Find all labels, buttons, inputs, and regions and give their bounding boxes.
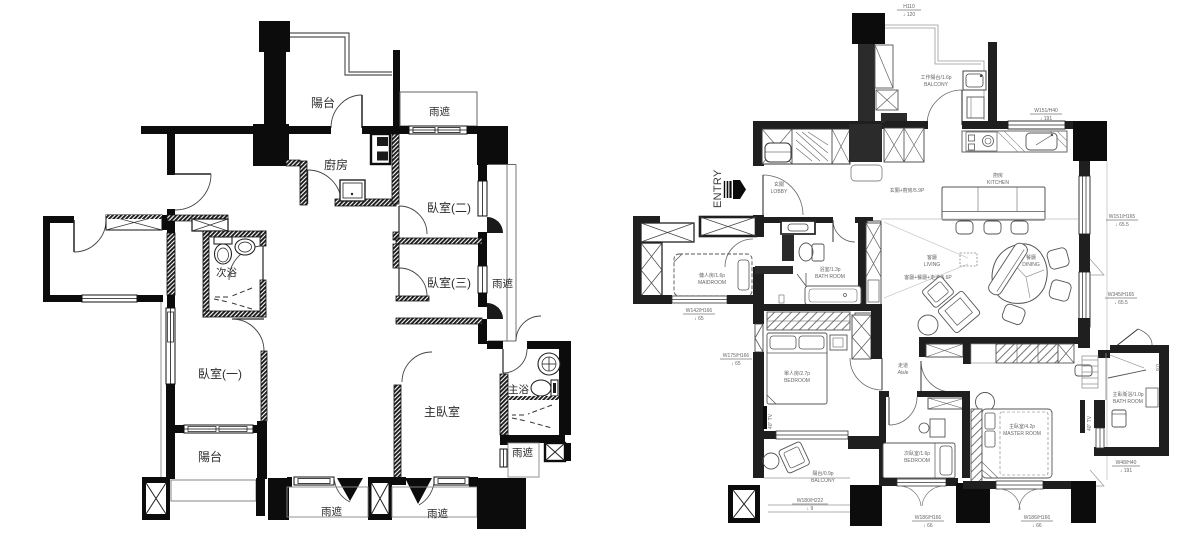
svg-text:BEDROOM: BEDROOM bbox=[904, 458, 930, 464]
svg-text:BATH ROOM: BATH ROOM bbox=[815, 274, 845, 280]
svg-text:陽台: 陽台 bbox=[198, 449, 222, 464]
svg-text:↓ 191: ↓ 191 bbox=[1040, 116, 1052, 122]
svg-text:↓ 9: ↓ 9 bbox=[807, 506, 814, 512]
svg-text:↓ 66: ↓ 66 bbox=[1032, 523, 1042, 529]
svg-text:主臥室/4.2p: 主臥室/4.2p bbox=[1009, 423, 1035, 430]
svg-text:W151/H40: W151/H40 bbox=[1034, 108, 1058, 114]
svg-text:次浴: 次浴 bbox=[216, 266, 237, 279]
svg-text:W175/H166: W175/H166 bbox=[723, 353, 750, 359]
svg-text:陽台: 陽台 bbox=[311, 95, 335, 110]
svg-text:雨遮: 雨遮 bbox=[321, 505, 342, 518]
svg-text:W151/H165: W151/H165 bbox=[1109, 214, 1136, 220]
svg-text:↓ 65: ↓ 65 bbox=[694, 316, 704, 322]
svg-text:40" TV: 40" TV bbox=[1087, 415, 1093, 431]
svg-text:↓ 120: ↓ 120 bbox=[903, 12, 915, 18]
svg-text:BALCONY: BALCONY bbox=[924, 82, 949, 88]
svg-text:MAIDROOM: MAIDROOM bbox=[698, 280, 726, 286]
svg-text:BEDROOM: BEDROOM bbox=[784, 378, 810, 384]
svg-text:LIVING: LIVING bbox=[924, 262, 941, 268]
svg-text:LOBBY: LOBBY bbox=[771, 189, 788, 195]
svg-text:MASTER ROOM: MASTER ROOM bbox=[1003, 431, 1041, 437]
svg-text:玄關: 玄關 bbox=[774, 181, 784, 188]
svg-text:浴室/1.3p: 浴室/1.3p bbox=[819, 266, 840, 273]
svg-text:0.8: 0.8 bbox=[1154, 364, 1160, 371]
svg-text:↓ 66: ↓ 66 bbox=[923, 523, 933, 529]
svg-text:ENTRY: ENTRY bbox=[712, 169, 724, 208]
svg-text:H110: H110 bbox=[903, 4, 915, 10]
svg-text:W142/H166: W142/H166 bbox=[686, 308, 713, 314]
svg-text:↓ 65.5: ↓ 65.5 bbox=[1114, 300, 1128, 306]
svg-text:廚房: 廚房 bbox=[993, 172, 1003, 179]
svg-text:臥室(一): 臥室(一) bbox=[198, 366, 242, 381]
svg-text:次臥室/1.6p: 次臥室/1.6p bbox=[904, 450, 930, 457]
svg-text:臥室(二): 臥室(二) bbox=[427, 200, 471, 215]
svg-text:BALCONY: BALCONY bbox=[811, 478, 836, 484]
svg-text:玄關+廚房/5.9P: 玄關+廚房/5.9P bbox=[890, 187, 925, 194]
svg-text:BATH ROOM: BATH ROOM bbox=[1113, 399, 1143, 405]
svg-text:工作陽台/1.6p: 工作陽台/1.6p bbox=[920, 74, 951, 81]
svg-text:陽台/0.9p: 陽台/0.9p bbox=[812, 470, 833, 477]
svg-text:↓ 191: ↓ 191 bbox=[1120, 468, 1132, 474]
svg-text:單人房/2.7p: 單人房/2.7p bbox=[784, 370, 810, 377]
svg-text:客廳: 客廳 bbox=[927, 254, 937, 261]
svg-text:雨遮: 雨遮 bbox=[512, 446, 533, 459]
svg-text:餐廳: 餐廳 bbox=[1026, 254, 1036, 261]
svg-text:W180/H222: W180/H222 bbox=[797, 498, 824, 504]
svg-text:雨遮: 雨遮 bbox=[429, 105, 450, 118]
svg-text:40" TV: 40" TV bbox=[768, 413, 774, 429]
svg-text:客廳+餐廳+走道/5.6P: 客廳+餐廳+走道/5.6P bbox=[904, 274, 952, 281]
svg-text:廚房: 廚房 bbox=[324, 157, 348, 172]
svg-text:W186/H166: W186/H166 bbox=[1024, 515, 1051, 521]
svg-text:雨遮: 雨遮 bbox=[492, 277, 513, 290]
svg-text:KITCHEN: KITCHEN bbox=[987, 180, 1009, 186]
svg-text:W48/H40: W48/H40 bbox=[1116, 460, 1137, 466]
svg-text:↓ 65: ↓ 65 bbox=[731, 361, 741, 367]
svg-text:主浴: 主浴 bbox=[508, 384, 529, 396]
svg-text:傭人房/1.6p: 傭人房/1.6p bbox=[699, 272, 725, 279]
svg-text:雨遮: 雨遮 bbox=[427, 507, 448, 520]
svg-text:主臥衛浴/1.0p: 主臥衛浴/1.0p bbox=[1112, 391, 1143, 398]
svg-text:↓ 65.5: ↓ 65.5 bbox=[1115, 222, 1129, 228]
svg-text:DINING: DINING bbox=[1022, 262, 1040, 268]
svg-text:臥室(三): 臥室(三) bbox=[427, 275, 471, 290]
svg-text:W186/H166: W186/H166 bbox=[915, 515, 942, 521]
svg-text:Aisle: Aisle bbox=[897, 370, 909, 376]
svg-text:主臥室: 主臥室 bbox=[424, 404, 460, 419]
svg-text:W345/H165: W345/H165 bbox=[1108, 292, 1135, 298]
svg-text:走道: 走道 bbox=[898, 362, 908, 369]
